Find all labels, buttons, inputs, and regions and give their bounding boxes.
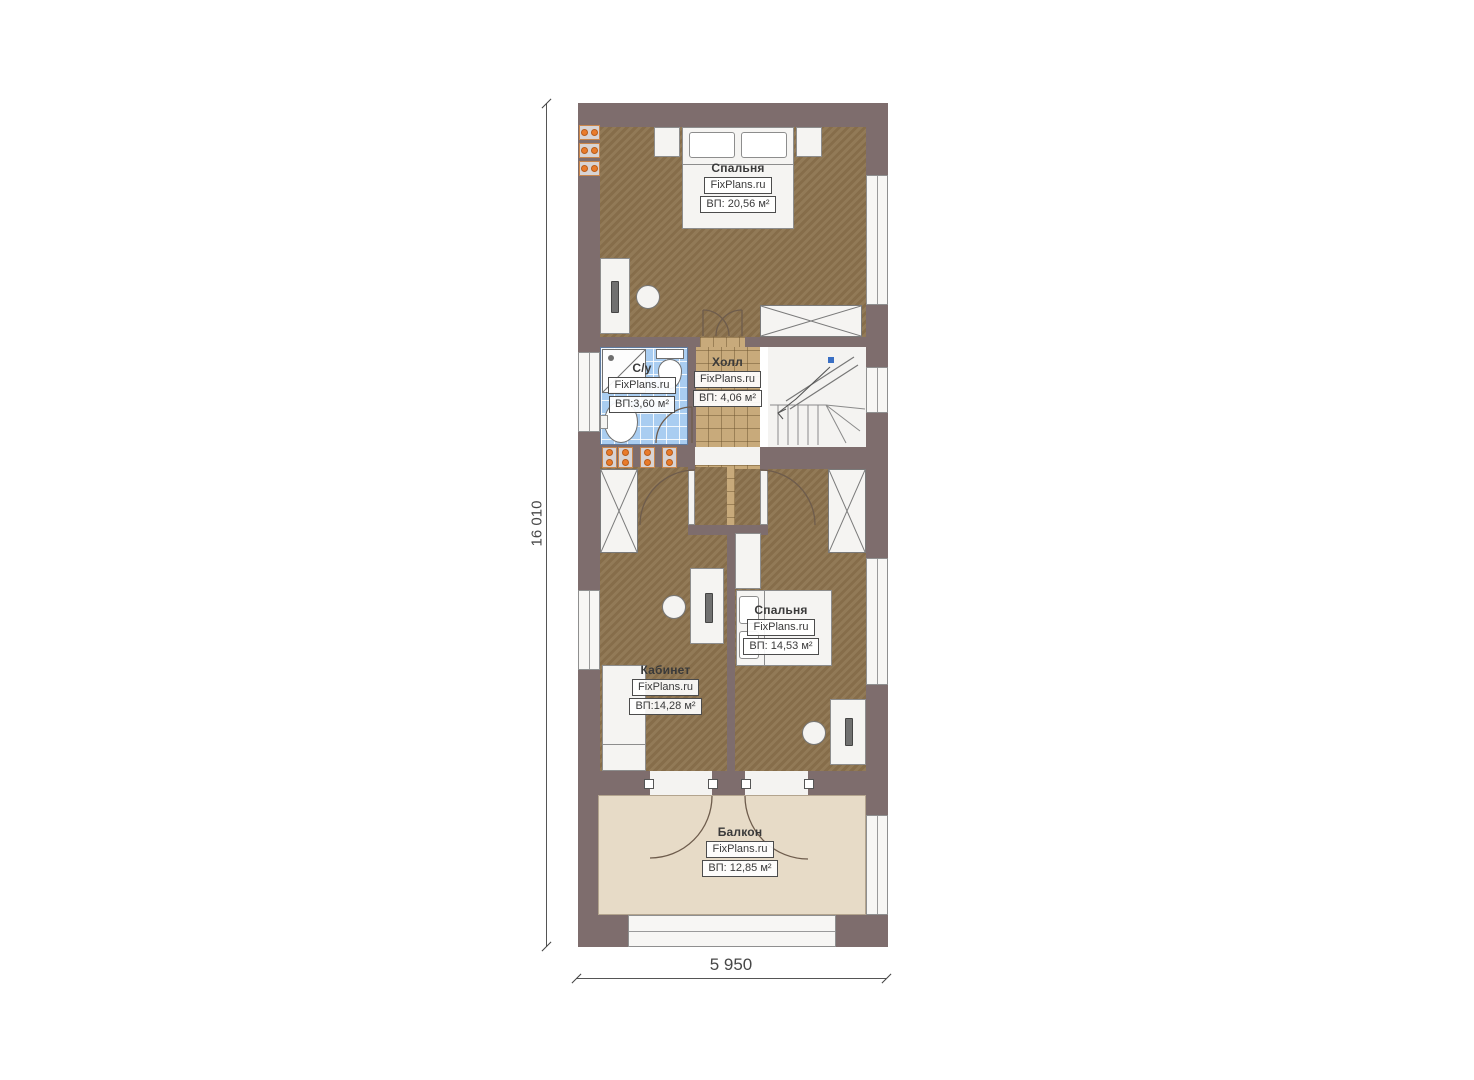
room-brand: FixPlans.ru	[694, 371, 761, 388]
room-area: ВП: 20,56 м²	[700, 196, 775, 213]
room-brand: FixPlans.ru	[704, 177, 771, 194]
balcony-railing-right	[866, 815, 888, 915]
desk-symbol	[690, 568, 724, 644]
room-brand: FixPlans.ru	[706, 841, 773, 858]
dimension-height-label: 16 010	[529, 474, 546, 574]
toilet-symbol	[656, 349, 684, 359]
pillow	[741, 132, 787, 158]
radiator-symbol	[579, 125, 600, 140]
wardrobe-symbol	[760, 305, 862, 337]
shelf-symbol	[735, 533, 761, 589]
floor-plan: Спальня FixPlans.ru ВП: 20,56 м² С/у Fix…	[578, 103, 888, 947]
pillow	[689, 132, 735, 158]
room-area: ВП: 14,53 м²	[743, 638, 818, 655]
balcony-door-threshold-right	[745, 771, 808, 795]
radiator-symbol	[579, 161, 600, 176]
chair-symbol	[662, 595, 686, 619]
room-name: Спальня	[711, 161, 764, 175]
radiator-symbol	[662, 447, 677, 468]
wardrobe-symbol	[600, 469, 638, 553]
radiator-symbol	[618, 447, 633, 468]
blanket	[603, 744, 645, 770]
dimension-line-vertical	[546, 103, 547, 947]
room-label-balcony: Балкон FixPlans.ru ВП: 12,85 м²	[680, 825, 800, 877]
bedroom-2-door-leaf	[760, 470, 768, 525]
wall-left	[578, 127, 600, 795]
balcony-pier-left	[578, 915, 628, 947]
room-area: ВП:14,28 м²	[629, 698, 701, 715]
window-right-bedroom-2	[866, 558, 888, 685]
room-label-office: Кабинет FixPlans.ru ВП:14,28 м²	[608, 663, 723, 715]
room-brand: FixPlans.ru	[747, 619, 814, 636]
dimension-line-horizontal	[576, 978, 886, 979]
window-right-stairs	[866, 367, 888, 413]
balcony-door-threshold-left	[650, 771, 712, 795]
door-jamb	[644, 779, 654, 789]
wall-bottom-main	[578, 771, 888, 795]
nightstand	[796, 127, 822, 157]
nightstand	[654, 127, 680, 157]
wall-top	[578, 103, 888, 127]
monitor	[845, 718, 853, 746]
room-name: Спальня	[754, 603, 807, 617]
sink-pedestal	[600, 415, 608, 429]
room-name: Балкон	[718, 825, 763, 839]
desk-symbol	[600, 258, 630, 334]
room-label-bathroom: С/у FixPlans.ru ВП:3,60 м²	[597, 361, 687, 413]
door-jamb	[708, 779, 718, 789]
radiator-symbol	[579, 143, 600, 158]
wall-stairs-bottom	[768, 447, 866, 469]
radiator-symbol	[602, 447, 617, 468]
door-jamb	[741, 779, 751, 789]
monitor	[705, 593, 713, 623]
room-brand: FixPlans.ru	[608, 377, 675, 394]
window-left-office	[578, 590, 600, 670]
room-area: ВП:3,60 м²	[609, 396, 675, 413]
wall-bedroom-divider-left	[600, 337, 700, 347]
office-door-leaf	[688, 470, 695, 525]
chair-symbol	[636, 285, 660, 309]
balcony-pier-right	[836, 915, 888, 947]
wall-bedroom-divider-right	[745, 337, 866, 347]
door-jamb	[804, 779, 814, 789]
chair-symbol	[802, 721, 826, 745]
room-name: С/у	[632, 361, 651, 375]
wall-balcony-right-stub	[866, 795, 888, 815]
stair-direction-marker	[828, 357, 834, 363]
floor-plan-canvas: Спальня FixPlans.ru ВП: 20,56 м² С/у Fix…	[0, 0, 1474, 1080]
bedroom-door-threshold	[700, 337, 745, 347]
desk-symbol	[830, 699, 866, 765]
room-name: Холл	[712, 355, 743, 369]
stairs-symbol	[768, 347, 866, 447]
room-label-bedroom-2: Спальня FixPlans.ru ВП: 14,53 м²	[726, 603, 836, 655]
room-label-hall: Холл FixPlans.ru ВП: 4,06 м²	[685, 355, 770, 407]
radiator-symbol	[640, 447, 655, 468]
hall-threshold	[695, 447, 760, 465]
room-area: ВП: 12,85 м²	[702, 860, 777, 877]
balcony-railing-bottom	[628, 915, 836, 947]
monitor	[611, 281, 619, 313]
wardrobe-symbol	[828, 469, 866, 553]
window-right-bedroom-top	[866, 175, 888, 305]
dimension-width-label: 5 950	[576, 955, 886, 975]
room-area: ВП: 4,06 м²	[693, 390, 762, 407]
room-name: Кабинет	[641, 663, 691, 677]
room-label-bedroom-top: Спальня FixPlans.ru ВП: 20,56 м²	[678, 161, 798, 213]
room-brand: FixPlans.ru	[632, 679, 699, 696]
